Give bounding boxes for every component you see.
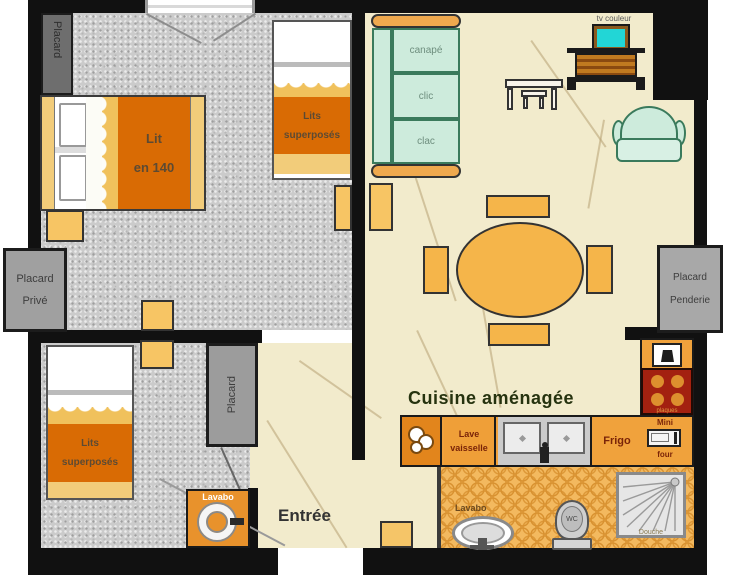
nightstand [141, 300, 174, 331]
nightstand [140, 340, 174, 369]
sofa-armrest-top [371, 14, 461, 28]
hob-burner [671, 375, 684, 388]
sink-basin [503, 422, 541, 454]
double-sink [498, 417, 592, 465]
stool-top [521, 90, 547, 97]
fridge-zone: Frigo [592, 417, 642, 465]
kitchen-title: Cuisine aménagée [408, 388, 574, 409]
tv-stand-foot [567, 82, 576, 90]
floorplan-canvas: Placard Lit en 140 Lits superposés Lits [0, 0, 731, 575]
window-glazing [148, 5, 252, 8]
shower-label: Douche [625, 528, 677, 537]
bunk-blanket-fold [274, 83, 350, 97]
tv-stand [575, 53, 637, 77]
bunk-divider [48, 390, 132, 395]
side-table-leg [507, 88, 513, 110]
kitchen-counter: Lave vaisselle Frigo Mini four [400, 415, 694, 467]
sink-faucet-knob [542, 442, 548, 448]
sink-drain [563, 435, 570, 442]
bunk-divider [274, 62, 350, 67]
sofa-armrest-bottom [371, 164, 461, 178]
toilet-label: WC [566, 516, 578, 523]
tv-stand-bottom-bar [567, 77, 645, 82]
stool-leg [539, 97, 544, 109]
nightstand [46, 210, 84, 242]
sofa-back-panel: clic [392, 73, 460, 119]
dishwasher-line1: Lave [459, 429, 480, 439]
bunk2-label-line2: superposés [62, 457, 118, 468]
bed-headboard [42, 97, 55, 209]
dishwasher-label-box: Lave vaisselle [444, 417, 496, 465]
side-table-top [505, 79, 563, 88]
bunk-blanket: Lits superposés [274, 97, 350, 154]
bathroom-sink-faucet-bar [470, 545, 494, 549]
bedroom2-washbasin-label: Lavabo [188, 492, 248, 502]
shower-spray-icon [619, 475, 683, 535]
hob-burner [651, 393, 664, 406]
closet-private-line1: Placard [16, 273, 53, 285]
bunk1-label-line1: Lits [303, 111, 321, 122]
top-right-corner-block [653, 0, 708, 100]
toilet-base [552, 538, 592, 550]
bunk-footer [48, 482, 132, 498]
closet-penderie-line2: Penderie [670, 295, 710, 306]
bedroom-living-wall [352, 13, 365, 460]
double-bed: Lit en 140 [40, 95, 206, 211]
closet-top-left-label: Placard [51, 21, 63, 58]
closet-middle: Placard [206, 343, 258, 447]
sofa-back-panel: clac [392, 119, 460, 164]
dishwasher-line2: vaisselle [450, 443, 488, 453]
sink-drain [519, 435, 526, 442]
bed-label-line2: en 140 [134, 160, 174, 175]
stool-leg [523, 97, 528, 109]
microwave-icon [647, 429, 681, 447]
bathroom-sink-label: Lavabo [455, 503, 487, 513]
dining-chair [488, 323, 550, 346]
closet-private-line2: Privé [22, 295, 47, 307]
hob-label: plaques [643, 407, 691, 414]
shower: Douche [616, 472, 686, 538]
dishwasher-icon-box [402, 417, 442, 465]
nightstand [334, 185, 352, 231]
bed-pillow [59, 103, 87, 147]
sofa-label-clic: clic [419, 91, 433, 102]
bunk2-label-line1: Lits [81, 438, 99, 449]
top-wall-right-segment [255, 0, 653, 13]
tv-screen [594, 26, 628, 50]
coffee-pot [661, 350, 674, 362]
hall-label: Entrée [278, 506, 331, 526]
dining-table [456, 222, 584, 318]
side-shelf [369, 183, 393, 231]
bedroom2-washbasin: Lavabo [186, 489, 250, 548]
washbasin-faucet [230, 518, 244, 525]
microwave-door [651, 433, 669, 442]
mini-oven-zone: Mini four [642, 417, 692, 465]
bed-blanket-fold [102, 97, 118, 209]
bunk-blanket-fold [48, 407, 132, 424]
tv-stand-foot [636, 82, 645, 90]
toilet-inner: WC [561, 506, 583, 532]
tv-label: tv couleur [582, 13, 646, 24]
bunk-bed-2: Lits superposés [46, 345, 134, 500]
bed-blanket: Lit en 140 [118, 97, 190, 209]
coffee-maker-icon [652, 343, 682, 367]
sink-basin [547, 422, 585, 454]
window-tick [252, 0, 255, 13]
closet-middle-label: Placard [226, 376, 238, 413]
bunk-blanket: Lits superposés [48, 424, 132, 482]
bunk-bed-1: Lits superposés [272, 20, 352, 180]
mini-oven-line2: four [642, 450, 688, 459]
closet-penderie-line1: Placard [673, 272, 707, 283]
sofa-label-canape: canapé [410, 45, 443, 56]
bed-pillow [59, 155, 87, 201]
dining-chair [486, 195, 550, 218]
closet-top-left: Placard [41, 13, 73, 95]
side-table-leg [551, 88, 557, 110]
hob: plaques [641, 368, 693, 415]
bottom-wall-right-segment [363, 548, 707, 575]
bathroom-partition [437, 467, 441, 548]
plates-icon [410, 441, 423, 454]
microwave-handle [674, 432, 677, 444]
closet-private: Placard Privé [3, 248, 67, 332]
sofa-seat [372, 28, 392, 164]
door-mat [380, 521, 413, 548]
dining-chair [586, 245, 613, 294]
armchair-seat [616, 138, 682, 162]
sink-faucet [540, 447, 549, 463]
hob-burner [651, 375, 664, 388]
bunk-footer [274, 154, 350, 174]
hob-burner [671, 393, 684, 406]
sofa-label-clac: clac [417, 136, 435, 147]
closet-penderie: Placard Penderie [657, 245, 723, 333]
bed-label-line1: Lit [146, 131, 162, 146]
dining-chair [423, 246, 449, 294]
bunk1-label-line2: superposés [284, 130, 340, 141]
mini-oven-line1: Mini [642, 418, 688, 427]
top-wall-left-segment [28, 0, 145, 13]
bottom-wall-left-segment [28, 548, 278, 575]
bed-footboard [190, 97, 204, 209]
toilet-bowl: WC [555, 500, 589, 540]
sofa-back-panel: canapé [392, 28, 460, 73]
